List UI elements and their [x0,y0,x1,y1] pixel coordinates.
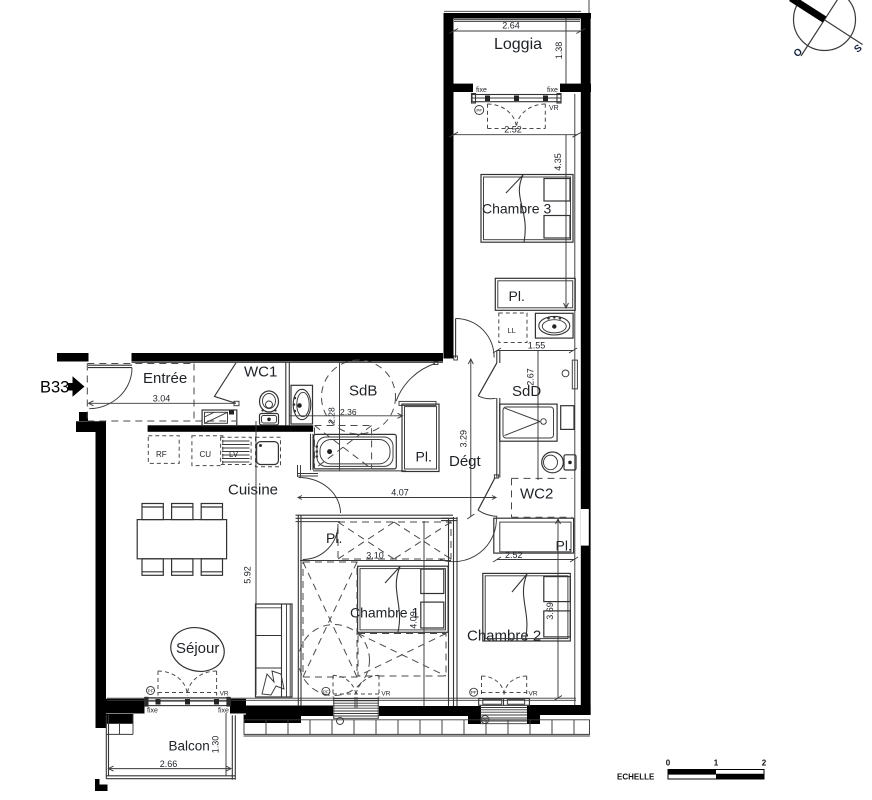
svg-text:fixe: fixe [218,708,229,715]
svg-text:Dégt: Dégt [449,453,482,470]
svg-text:1.38: 1.38 [554,42,564,60]
svg-text:Loggia: Loggia [494,36,542,53]
svg-text:RF: RF [156,450,167,459]
svg-text:Pl.: Pl. [509,288,525,304]
svg-text:Séjour: Séjour [176,640,219,657]
svg-text:Chambre 3: Chambre 3 [482,201,551,217]
svg-text:4.07: 4.07 [391,487,409,497]
svg-text:Chambre 2: Chambre 2 [467,628,541,645]
svg-text:PF: PF [476,108,482,113]
svg-text:fixe: fixe [476,87,487,94]
svg-text:ECHELLE: ECHELLE [617,773,655,782]
svg-text:PF: PF [148,689,154,694]
svg-text:2.28: 2.28 [327,407,337,424]
svg-text:WC2: WC2 [520,486,553,503]
svg-text:PF: PF [471,690,477,695]
svg-text:2.66: 2.66 [160,759,178,769]
svg-text:VR: VR [220,691,229,698]
svg-text:1: 1 [714,759,719,768]
svg-text:2.64: 2.64 [502,21,520,31]
svg-text:LV: LV [229,450,239,459]
svg-text:WC1: WC1 [244,364,277,381]
svg-text:3.10: 3.10 [366,551,384,561]
svg-text:2.52: 2.52 [505,550,523,560]
svg-text:B33: B33 [40,379,69,397]
svg-text:VR: VR [549,105,559,112]
svg-text:fixe: fixe [547,87,558,94]
svg-text:CU: CU [200,450,212,459]
svg-text:0: 0 [666,759,671,768]
svg-text:Balcon: Balcon [169,739,210,754]
svg-text:VR: VR [381,691,390,698]
svg-text:2.36: 2.36 [340,407,357,417]
svg-text:VR: VR [529,691,538,698]
svg-text:4.35: 4.35 [553,153,563,171]
svg-text:1.55: 1.55 [528,341,546,351]
svg-text:Entrée: Entrée [143,370,187,387]
svg-text:2.52: 2.52 [504,125,522,135]
svg-text:3.04: 3.04 [153,393,171,403]
svg-text:Cuisine: Cuisine [228,482,278,499]
svg-text:4.09: 4.09 [409,611,419,629]
svg-text:LL: LL [508,326,516,335]
svg-text:PF: PF [323,689,329,694]
svg-text:SdB: SdB [349,383,377,400]
svg-text:5.92: 5.92 [243,566,253,584]
svg-text:Pl.: Pl. [416,449,432,465]
svg-text:Pl.: Pl. [326,530,342,546]
svg-text:2.67: 2.67 [526,368,536,386]
svg-text:3.29: 3.29 [459,430,469,448]
svg-text:2: 2 [762,759,767,768]
svg-text:fixe: fixe [147,708,158,715]
svg-text:1.30: 1.30 [211,736,221,754]
